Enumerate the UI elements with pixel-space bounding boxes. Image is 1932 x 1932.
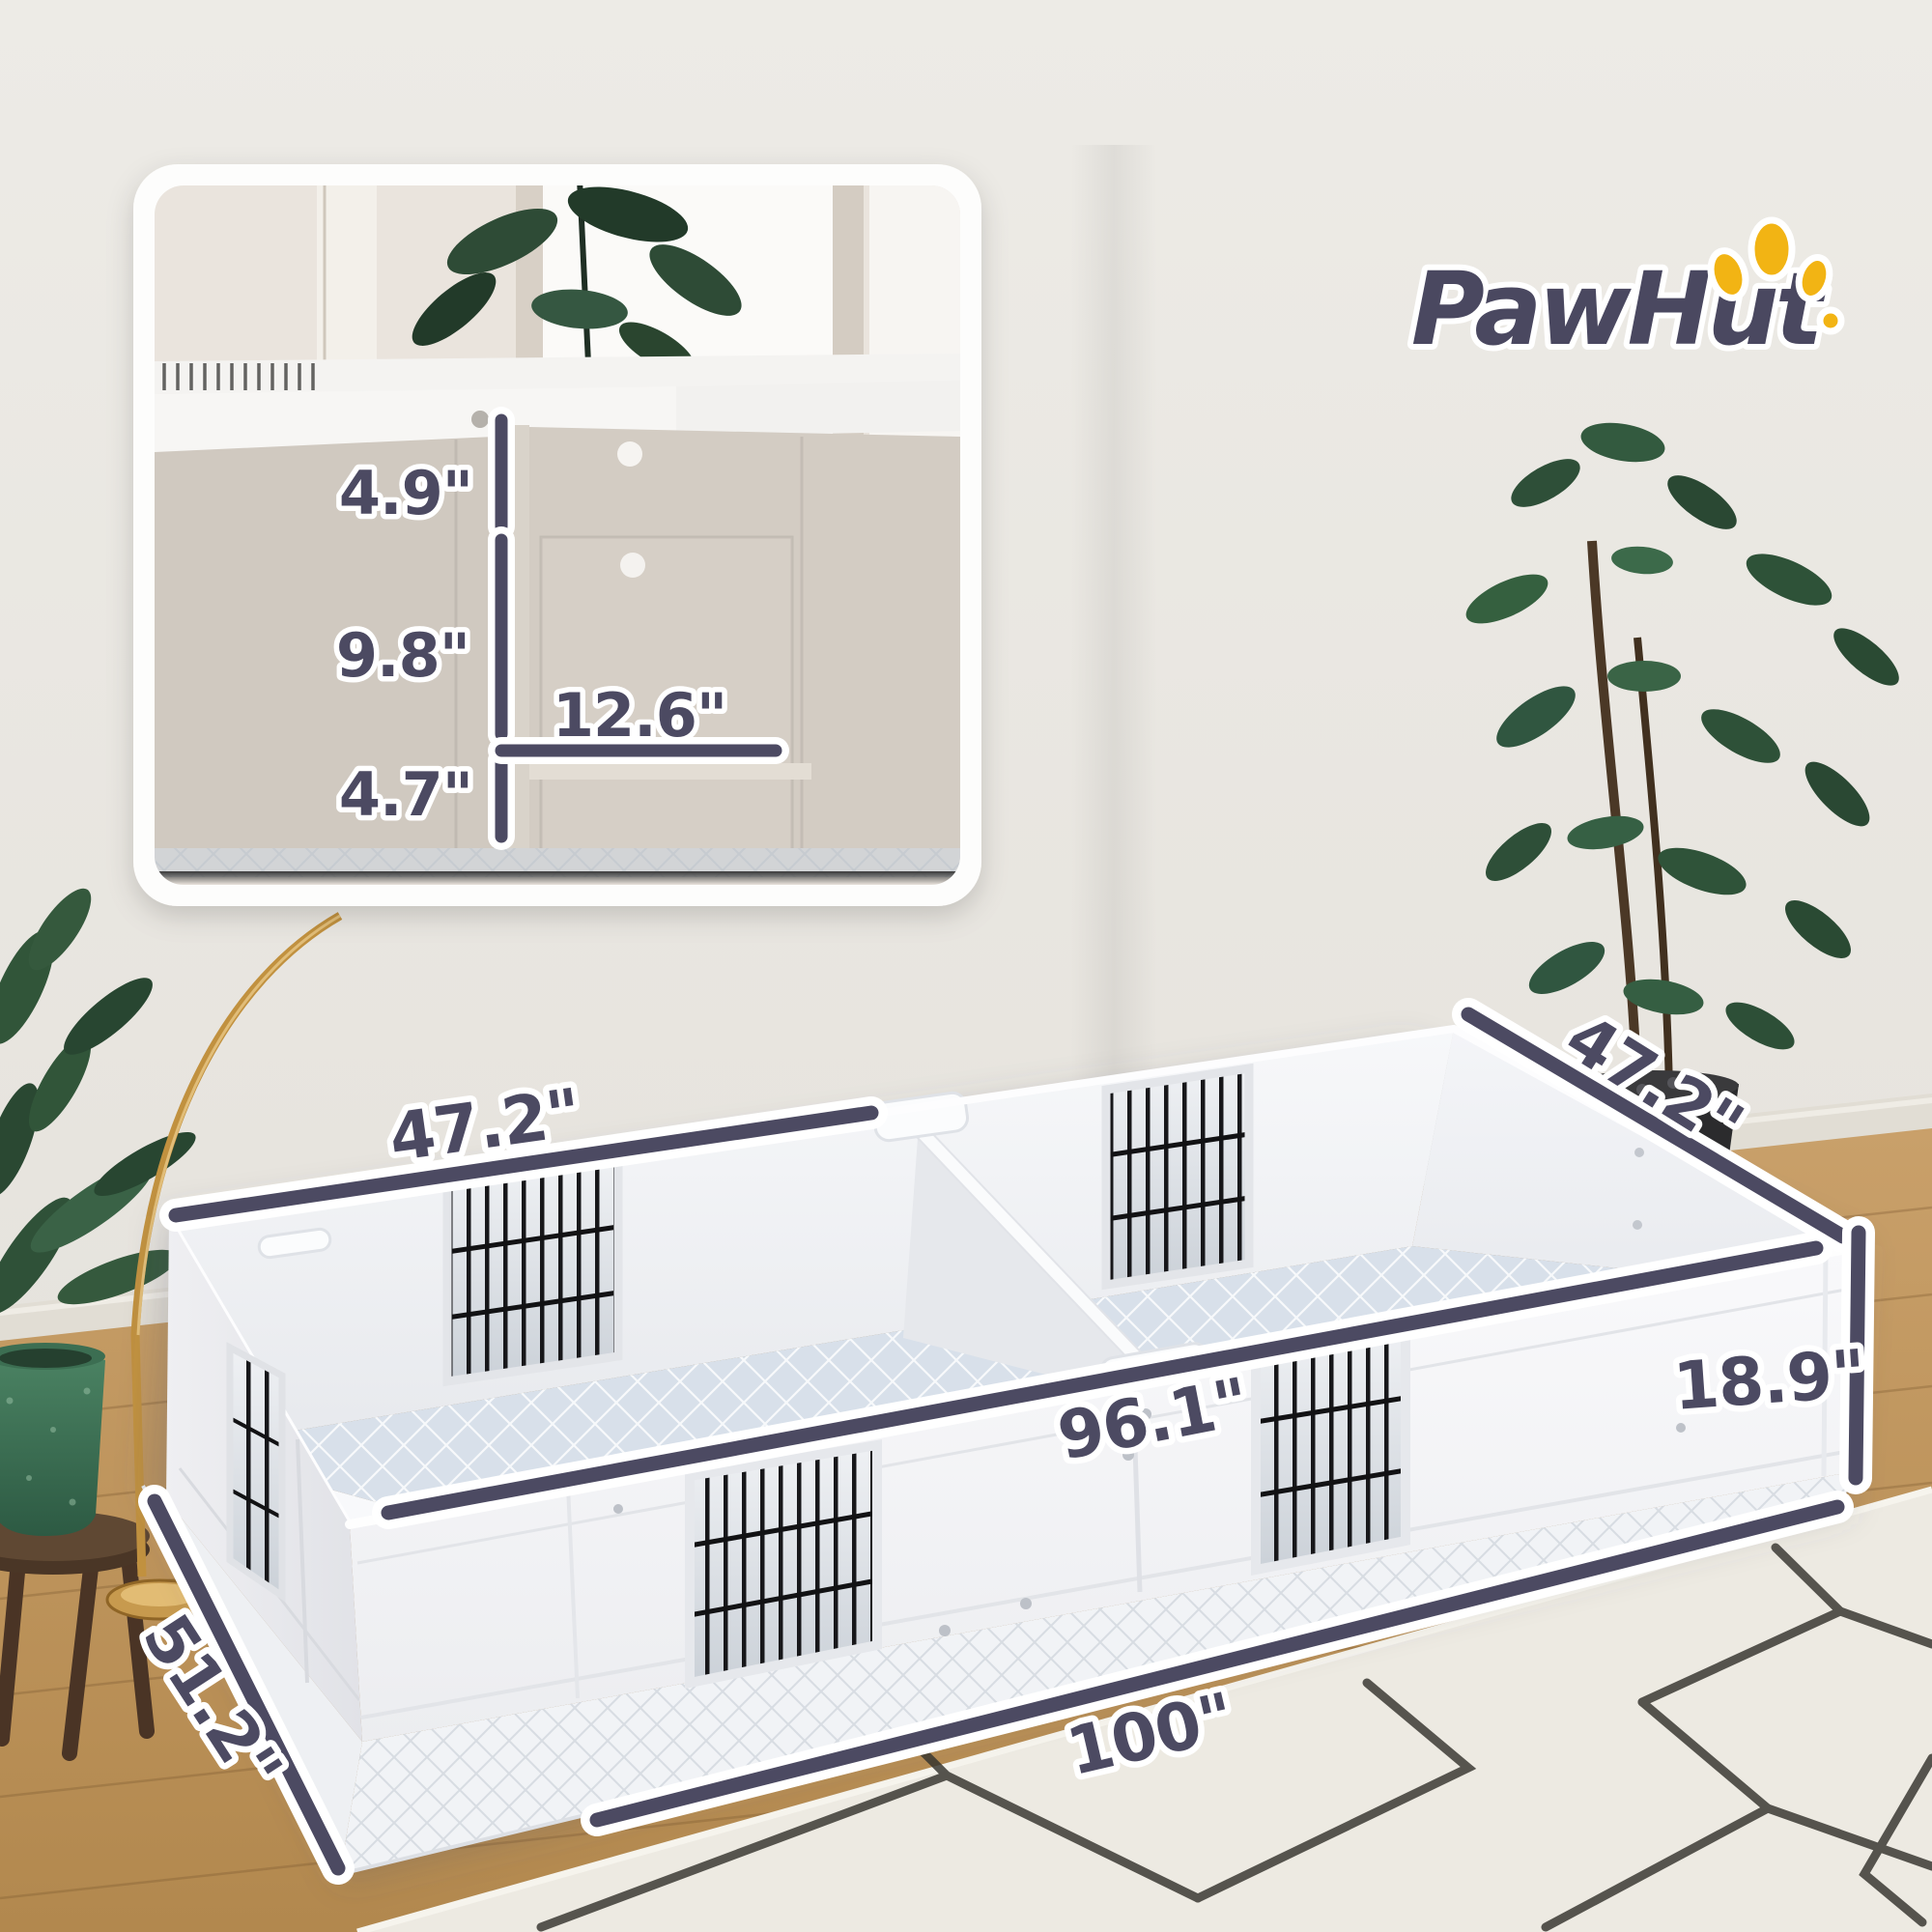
mesh-window-front-left <box>686 1439 881 1687</box>
inset-rail-hole <box>471 411 489 428</box>
mesh-window-side-left <box>228 1343 286 1600</box>
product-dimension-image: 47.2" 47.2" 96.1" 18.9" 100" 51.2" <box>0 0 1932 1932</box>
scene: 47.2" 47.2" 96.1" 18.9" 100" 51.2" <box>0 0 1932 1932</box>
mesh-window-back-right <box>1103 1063 1256 1290</box>
inset-door-sill <box>529 763 811 780</box>
pot-soil <box>0 1349 92 1368</box>
inset-photo <box>155 176 960 885</box>
inset-door-knob <box>620 553 645 578</box>
inset-dim-label-bottom-rail: 4.7" <box>339 759 472 830</box>
inset-dim-label-door-width: 12.6" <box>553 680 726 751</box>
dim-label-wall-height: 18.9" <box>1671 1336 1867 1426</box>
stool-plant-pot <box>0 1352 105 1536</box>
inset-dim-label-top-rail: 4.9" <box>339 458 472 528</box>
inset-dim-label-door-height: 9.8" <box>336 620 469 691</box>
logo-paw-dot <box>1820 310 1841 331</box>
mesh-window-back-left <box>444 1154 623 1391</box>
wall-corner-shadow <box>1070 145 1157 1121</box>
inset-door-knob <box>617 441 642 467</box>
logo-paw-toe <box>1751 220 1792 278</box>
inset-floor-shadow <box>155 871 960 885</box>
inset-card: 4.9" 9.8" 4.7" 12.6" <box>133 164 981 906</box>
inset-front-rail-right <box>676 381 960 437</box>
